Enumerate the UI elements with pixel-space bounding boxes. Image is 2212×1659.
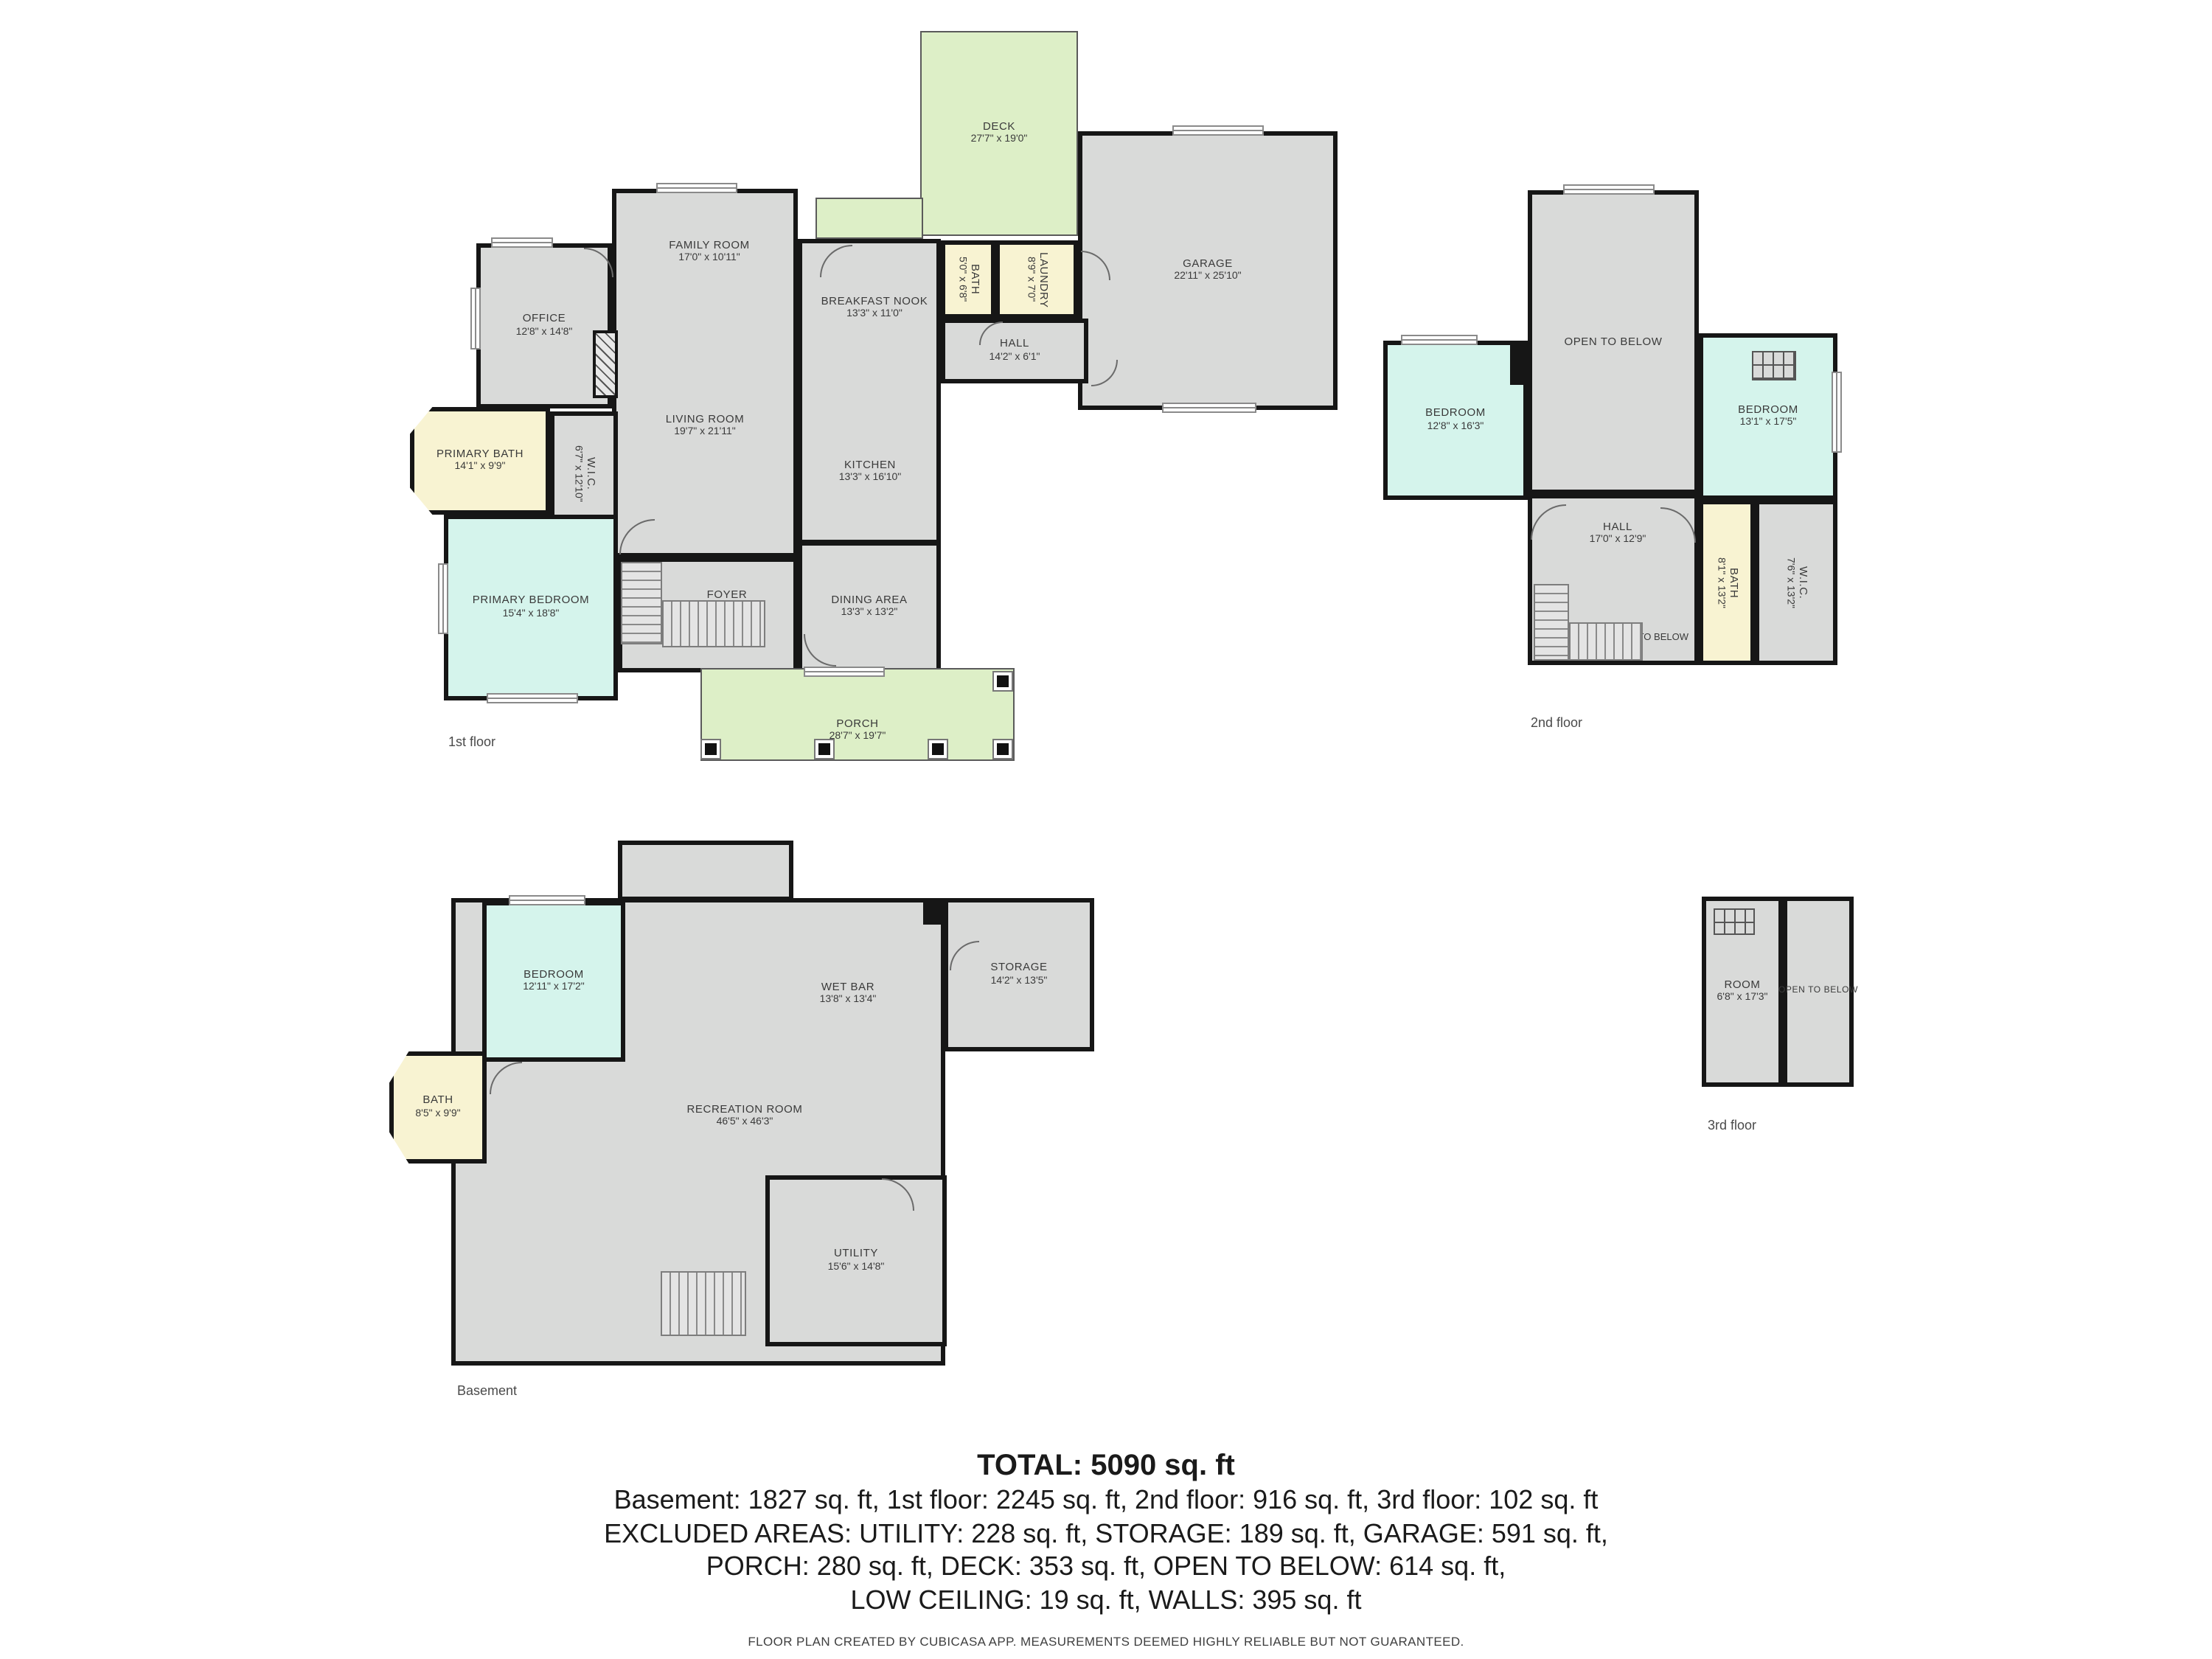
room-dims: 14'1" x 9'9" [455, 462, 506, 476]
room-bath-2nd: BATH 8'1" x 13'2" [1699, 500, 1755, 665]
stairs-icon [1569, 622, 1643, 661]
floor-label-basement: Basement [457, 1383, 517, 1398]
room-dims: 17'0" x 10'11" [678, 254, 740, 267]
room-dims: 46'5" x 46'3" [717, 1118, 773, 1131]
room-hall-label: HALL 17'0" x 12'9" [1590, 520, 1646, 548]
porch-post [997, 743, 1009, 755]
room-name: WET BAR [821, 980, 874, 994]
window-marker [804, 667, 885, 677]
window-marker [1401, 335, 1478, 345]
room-dims: 27'7" x 19'0" [971, 135, 1028, 148]
room-name: OPEN TO BELOW [1564, 335, 1662, 349]
room-primary-bedroom: PRIMARY BEDROOM 15'4" x 18'8" [444, 515, 618, 700]
wall-segment [923, 898, 944, 925]
window-marker [438, 563, 448, 634]
hatch-area [593, 330, 618, 398]
room-wet-bar-label: WET BAR 13'8" x 13'4" [820, 980, 877, 1008]
room-utility: UTILITY 15'6" x 14'8" [765, 1175, 947, 1346]
stairs-icon [661, 1271, 746, 1336]
room-recreation-label: RECREATION ROOM 46'5" x 46'3" [686, 1102, 802, 1130]
room-name: ROOM [1724, 978, 1760, 992]
floor-areas-text: Basement: 1827 sq. ft, 1st floor: 2245 s… [0, 1484, 2212, 1517]
room-dims: 17'0" x 12'9" [1590, 535, 1646, 549]
window-marker [487, 693, 578, 703]
window-marker [509, 895, 585, 905]
porch-post [818, 743, 830, 755]
room-dims: 15'4" x 18'8" [503, 609, 560, 622]
room-dims: 7'6" x 13'2" [1782, 557, 1795, 608]
room-name: PORCH [836, 717, 878, 731]
room-dims: 14'2" x 6'1" [990, 352, 1040, 366]
window-marker [1172, 125, 1264, 136]
room-name: DECK [983, 119, 1015, 133]
room-name: BEDROOM [1425, 406, 1486, 420]
room-garage: GARAGE 22'11" x 25'10" [1078, 131, 1338, 410]
room-name: FOYER [707, 588, 748, 602]
room-dims: 12'8" x 14'8" [516, 327, 573, 341]
deck-walkway [815, 198, 923, 239]
basement-upper-stub [618, 841, 793, 901]
room-dims: 8'9" x 7'0" [1023, 257, 1036, 302]
room-breakfast-kitchen: BREAKFAST NOOK 13'3" x 11'0" KITCHEN 13'… [798, 239, 941, 544]
room-name: BATH [422, 1093, 453, 1107]
stairs-icon [662, 600, 765, 647]
window-marker [656, 183, 737, 193]
room-dims: 12'8" x 16'3" [1427, 422, 1484, 435]
room-name: W.I.C. [584, 458, 598, 490]
room-dims: 8'1" x 13'2" [1713, 557, 1726, 608]
room-hall-1st: HALL 14'2" x 6'1" [941, 319, 1088, 383]
window-marker [1832, 372, 1842, 453]
room-dims: 22'11" x 25'10" [1174, 272, 1241, 285]
room-bedroom-basement: BEDROOM 12'11" x 17'2" [482, 901, 625, 1062]
room-primary-bath: PRIMARY BATH 14'1" x 9'9" [410, 407, 550, 515]
wall-segment [1510, 344, 1531, 385]
room-dims: 14'2" x 13'5" [991, 976, 1048, 990]
room-name: BEDROOM [524, 967, 584, 981]
room-dims: 5'0" x 6'8" [954, 257, 967, 302]
room-dims: 6'7" x 12'10" [570, 446, 583, 503]
area-open-to-below-3rd: OPEN TO BELOW [1783, 897, 1854, 1087]
porch-post [705, 743, 717, 755]
stairs-icon [1714, 908, 1755, 935]
room-dims: 15'6" x 14'8" [828, 1262, 885, 1276]
stairs-icon [621, 562, 662, 644]
room-deck: DECK 27'7" x 19'0" [920, 31, 1078, 236]
room-bedroom-left-2nd: BEDROOM 12'8" x 16'3" [1383, 341, 1528, 500]
room-name: W.I.C. [1796, 566, 1810, 599]
room-dims: 8'5" x 9'9" [415, 1109, 460, 1122]
room-name: KITCHEN [844, 458, 896, 472]
area-summary: TOTAL: 5090 sq. ft Basement: 1827 sq. ft… [0, 1448, 2212, 1649]
stairs-icon [1534, 584, 1569, 661]
window-marker [491, 237, 553, 248]
room-dims: 13'1" x 17'5" [1740, 418, 1797, 431]
window-marker [470, 288, 481, 349]
room-name: GARAGE [1183, 257, 1233, 271]
room-living-room-label: LIVING ROOM 19'7" x 21'11" [666, 412, 745, 440]
room-name: STORAGE [990, 961, 1047, 975]
room-dims: 6'8" x 17'3" [1717, 993, 1768, 1006]
room-name: FAMILY ROOM [669, 238, 749, 252]
room-dims: 13'8" x 13'4" [820, 995, 877, 1009]
porch-post [932, 743, 944, 755]
room-name: UTILITY [834, 1247, 878, 1261]
porch-post [997, 675, 1009, 687]
room-name: BREAKFAST NOOK [821, 294, 928, 308]
room-name: BATH [968, 264, 982, 294]
floor-plan-canvas: DECK 27'7" x 19'0" GARAGE 22'11" x 25'10… [0, 0, 2212, 1659]
area-open-to-below-upper: OPEN TO BELOW [1528, 190, 1699, 494]
room-dims: 28'7" x 19'7" [829, 732, 886, 745]
floor-label-1st: 1st floor [448, 734, 495, 749]
room-porch: PORCH 28'7" x 19'7" [700, 668, 1015, 761]
room-family-room-label: FAMILY ROOM 17'0" x 10'11" [669, 238, 749, 266]
room-name: RECREATION ROOM [686, 1102, 802, 1116]
room-name: OPEN TO BELOW [1778, 987, 1858, 998]
room-name: BATH [1727, 567, 1741, 597]
room-name: DINING AREA [831, 593, 907, 607]
room-dims: 13'3" x 13'2" [841, 608, 898, 622]
excluded-areas-text-3: LOW CEILING: 19 sq. ft, WALLS: 395 sq. f… [0, 1583, 2212, 1616]
floor-label-3rd: 3rd floor [1708, 1118, 1756, 1133]
window-marker [1563, 184, 1655, 195]
total-area-text: TOTAL: 5090 sq. ft [0, 1448, 2212, 1484]
disclaimer-text: FLOOR PLAN CREATED BY CUBICASA APP. MEAS… [0, 1634, 2212, 1649]
excluded-areas-text: EXCLUDED AREAS: UTILITY: 228 sq. ft, STO… [0, 1517, 2212, 1550]
room-dims: 13'3" x 16'10" [839, 473, 902, 487]
room-breakfast-nook-label: BREAKFAST NOOK 13'3" x 11'0" [821, 294, 928, 322]
room-laundry: LAUNDRY 8'9" x 7'0" [995, 240, 1078, 319]
room-name: PRIMARY BEDROOM [473, 594, 590, 608]
excluded-areas-text-2: PORCH: 280 sq. ft, DECK: 353 sq. ft, OPE… [0, 1550, 2212, 1583]
floor-label-2nd: 2nd floor [1531, 715, 1582, 730]
room-dims: 19'7" x 21'11" [674, 428, 736, 441]
room-dims: 12'11" x 17'2" [523, 983, 585, 996]
room-name: OFFICE [523, 312, 566, 326]
room-name: BEDROOM [1738, 403, 1798, 417]
room-wic-2nd: W.I.C. 7'6" x 13'2" [1755, 500, 1837, 665]
room-kitchen-label: KITCHEN 13'3" x 16'10" [839, 458, 902, 486]
room-name: HALL [1603, 520, 1632, 534]
room-storage: STORAGE 14'2" x 13'5" [944, 898, 1094, 1051]
room-bath-1st: BATH 5'0" x 6'8" [941, 240, 995, 319]
room-name: LAUNDRY [1037, 251, 1051, 307]
room-dims: 13'3" x 11'0" [846, 310, 902, 323]
room-name: HALL [1000, 337, 1029, 351]
room-name: PRIMARY BATH [437, 447, 524, 461]
window-marker [1162, 403, 1256, 413]
room-family-living: FAMILY ROOM 17'0" x 10'11" LIVING ROOM 1… [612, 189, 798, 557]
stairs-icon [1752, 351, 1796, 380]
room-name: LIVING ROOM [666, 412, 745, 426]
room-bath-basement: BATH 8'5" x 9'9" [389, 1051, 487, 1164]
